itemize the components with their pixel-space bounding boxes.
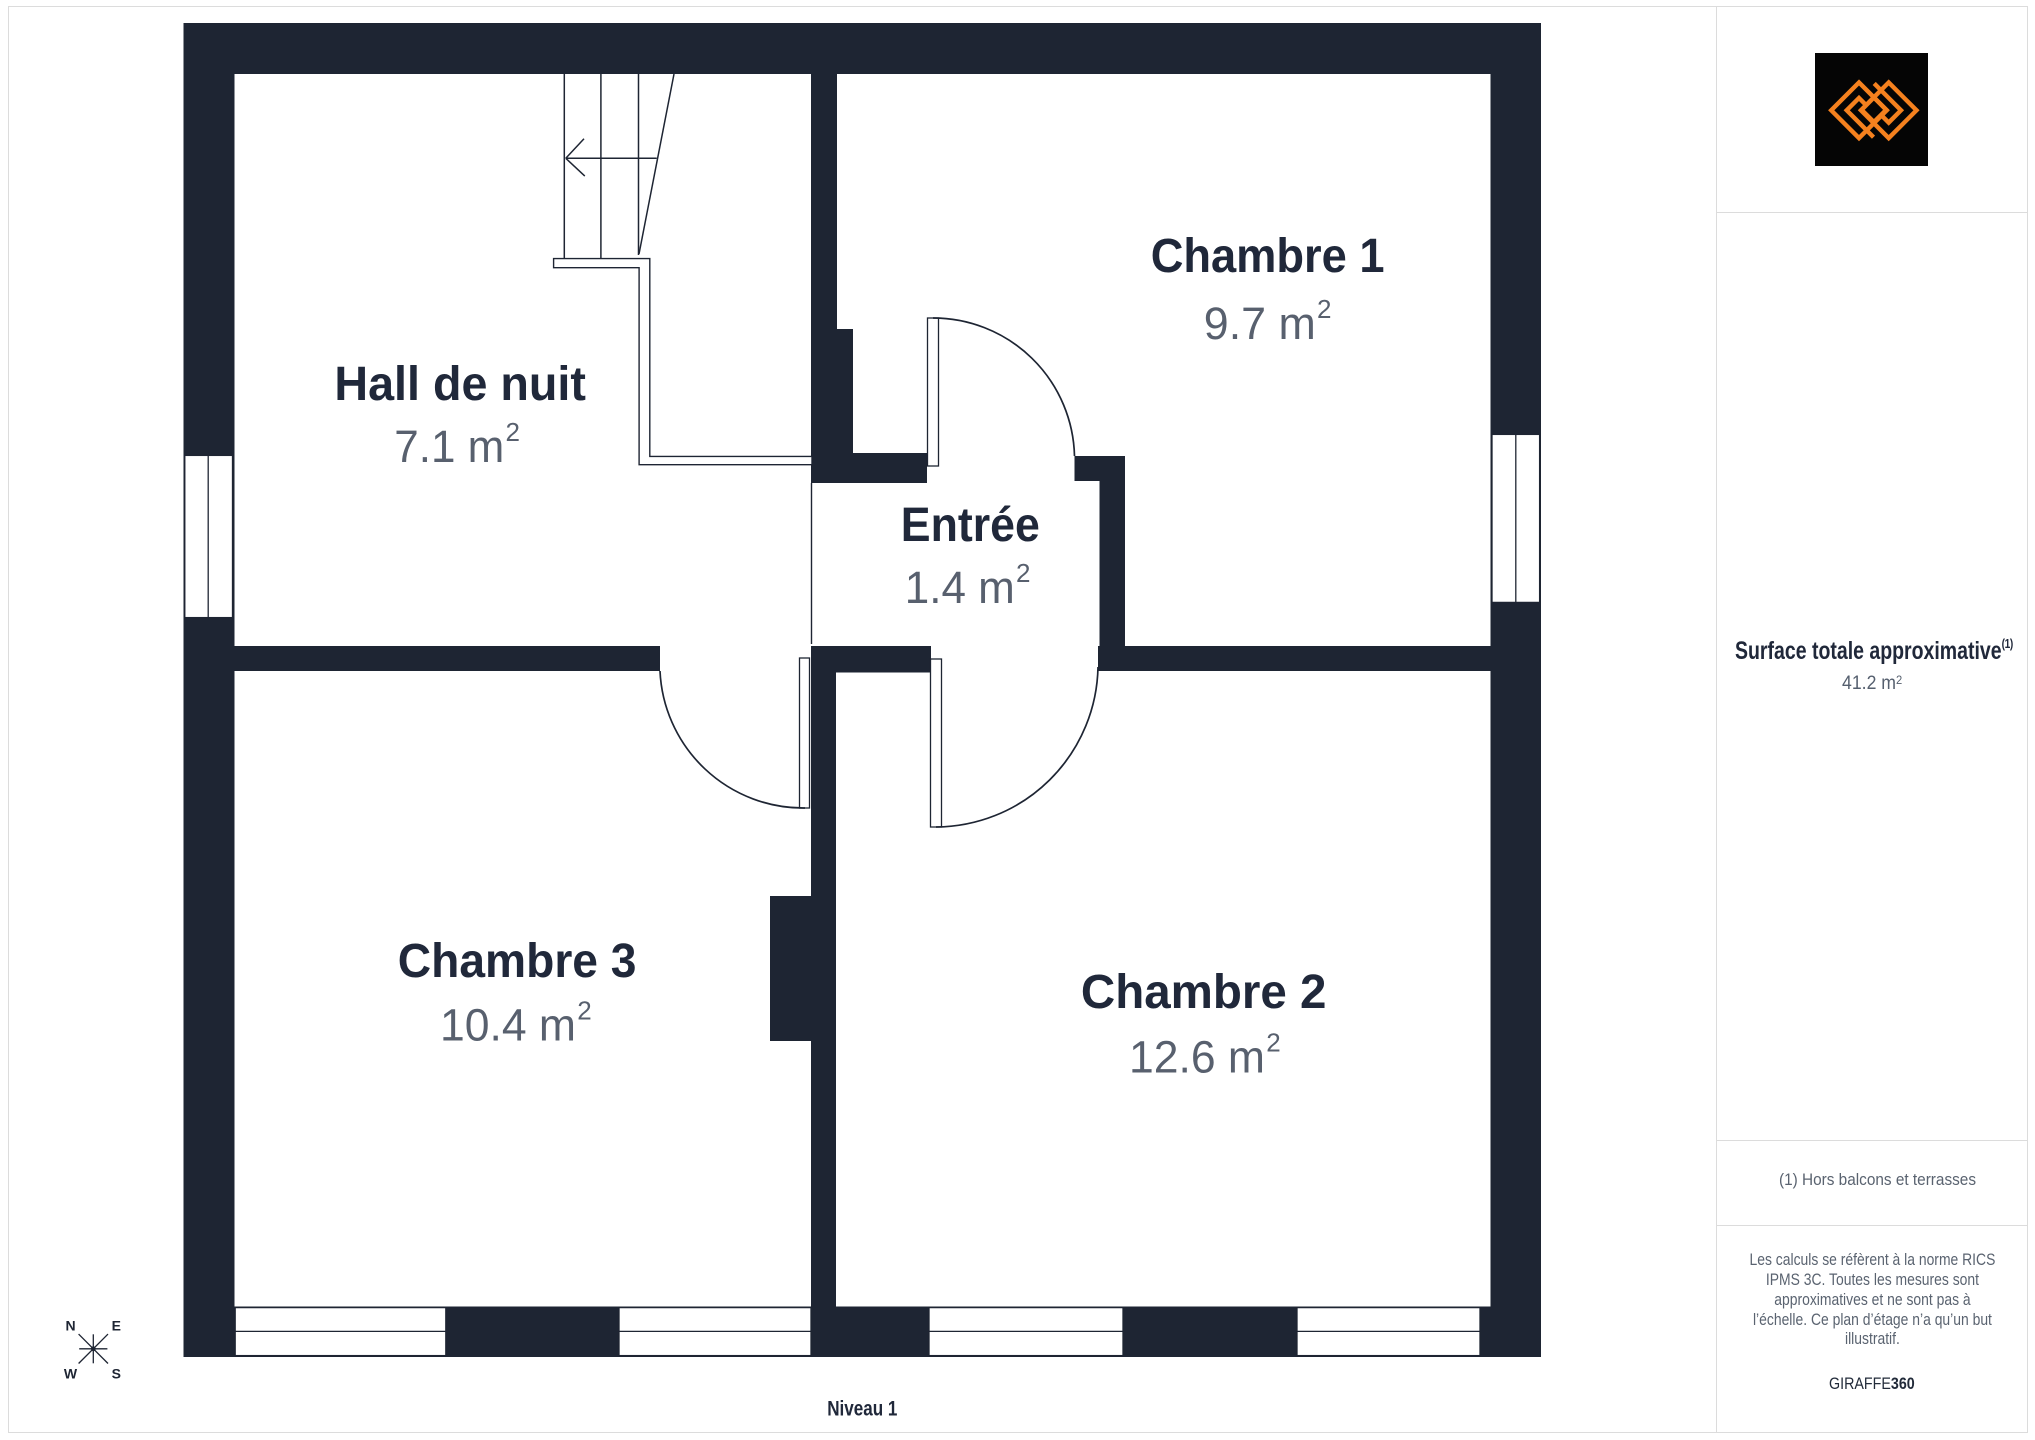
- svg-text:10.4 m: 10.4 m: [440, 1000, 576, 1051]
- svg-text:12.6 m: 12.6 m: [1129, 1032, 1265, 1083]
- svg-text:1.4 m: 1.4 m: [905, 562, 1015, 613]
- svg-text:2: 2: [1266, 1028, 1280, 1058]
- svg-text:W: W: [64, 1366, 78, 1382]
- svg-text:S: S: [112, 1366, 121, 1382]
- svg-text:Hall de nuit: Hall de nuit: [334, 358, 586, 411]
- svg-text:2: 2: [1016, 558, 1030, 588]
- svg-text:2: 2: [577, 996, 591, 1026]
- svg-text:Entrée: Entrée: [901, 499, 1040, 552]
- svg-text:2: 2: [506, 417, 520, 447]
- svg-text:2: 2: [1317, 294, 1331, 324]
- svg-text:Chambre 3: Chambre 3: [398, 935, 637, 988]
- svg-text:9.7 m: 9.7 m: [1204, 298, 1316, 349]
- svg-text:Chambre 1: Chambre 1: [1151, 230, 1385, 283]
- svg-text:Chambre 2: Chambre 2: [1081, 966, 1327, 1019]
- svg-text:Niveau 1: Niveau 1: [827, 1397, 897, 1420]
- svg-text:7.1 m: 7.1 m: [394, 421, 504, 472]
- svg-text:N: N: [65, 1317, 75, 1333]
- svg-text:E: E: [112, 1317, 121, 1333]
